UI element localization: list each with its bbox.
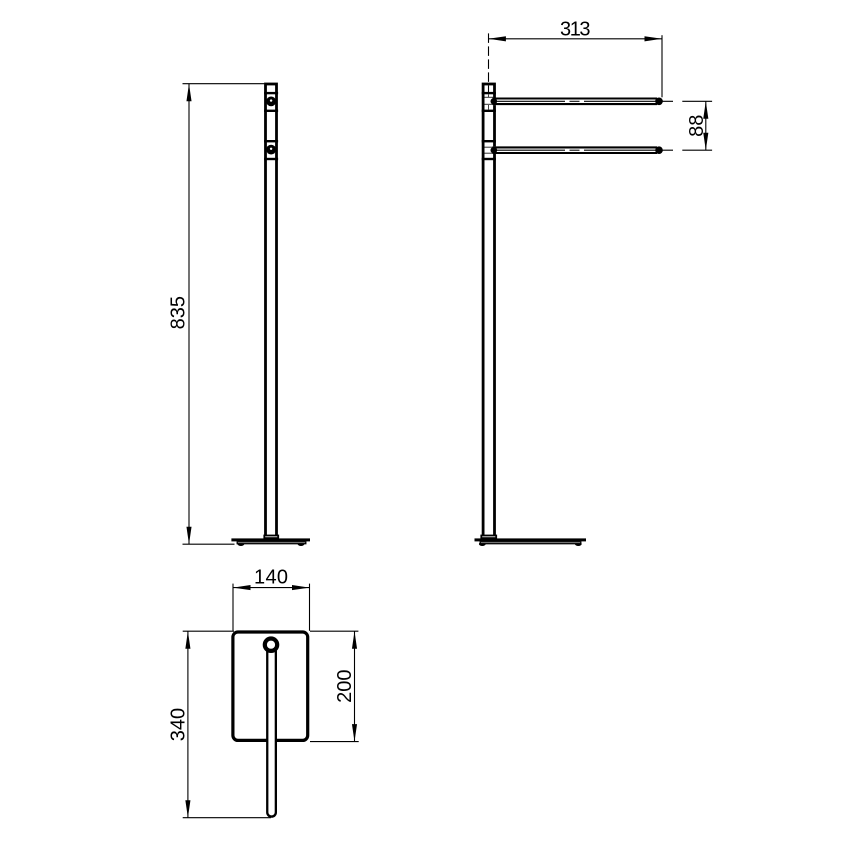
svg-text:200: 200 bbox=[334, 670, 356, 703]
svg-text:88: 88 bbox=[686, 115, 708, 137]
svg-text:313: 313 bbox=[560, 19, 591, 41]
svg-text:140: 140 bbox=[254, 566, 288, 588]
svg-text:835: 835 bbox=[168, 296, 190, 329]
svg-text:340: 340 bbox=[167, 708, 189, 741]
